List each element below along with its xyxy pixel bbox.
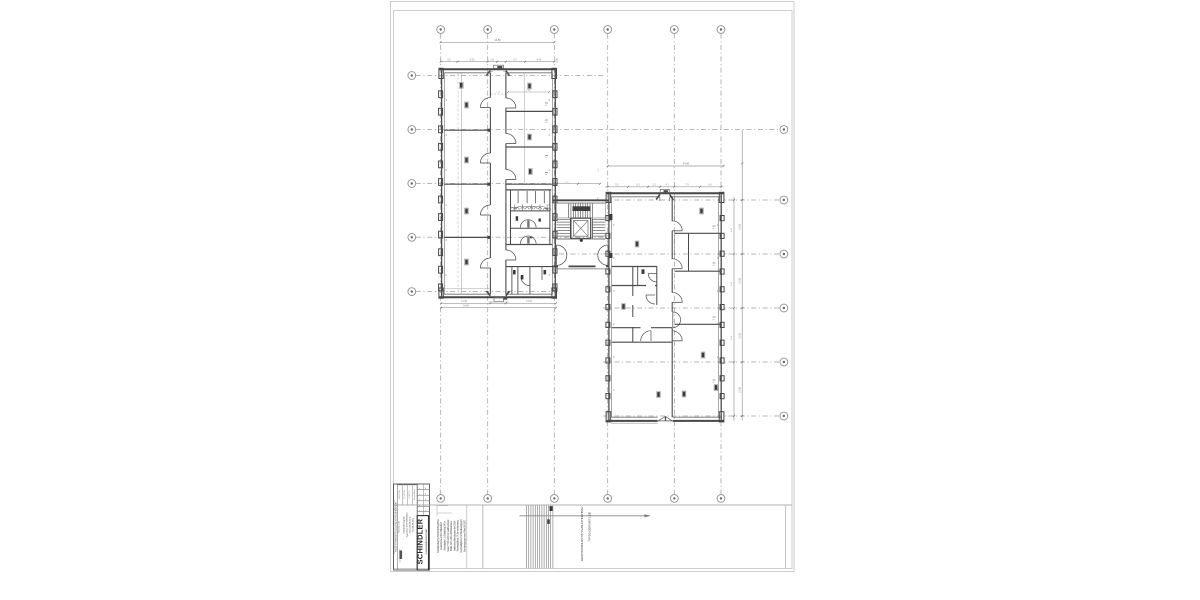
svg-text:8: 8 <box>425 494 426 496</box>
svg-text:34.80: 34.80 <box>463 305 470 308</box>
svg-text:Telefon 041 445 31 31: Telefon 041 445 31 31 <box>410 516 412 533</box>
svg-text:8: 8 <box>425 510 426 512</box>
svg-text:SCHINDLER: SCHINDLER <box>416 518 425 564</box>
svg-text:12.9.07 Ka: 12.9.07 Ka <box>404 489 406 499</box>
svg-text:WOHNUNGSBAUGESELLSCHAFT: WOHNUNGSBAUGESELLSCHAFT <box>425 528 428 555</box>
svg-text:14.50: 14.50 <box>461 300 468 303</box>
svg-text:Zugerstrasse 13 CH-6030 Ebikon: Zugerstrasse 13 CH-6030 Ebikon <box>406 511 409 537</box>
svg-text:8: 8 <box>425 499 426 501</box>
svg-text:13.55: 13.55 <box>738 277 741 284</box>
svg-text:Antrieb oben Maschinenraumlos: Antrieb oben Maschinenraumlos 6.5 kW <box>453 520 456 551</box>
svg-text:8: 8 <box>425 488 426 490</box>
svg-text:Projekt Nr 107.345 Block B Ges: Projekt Nr 107.345 Block B Geschossplan … <box>395 501 398 552</box>
svg-text:Steuerung Miconic TX Sammelste: Steuerung Miconic TX Sammelsteuerung <box>457 519 460 551</box>
svg-text:Schachtgrube 1.10 Schachtkopf: Schachtgrube 1.10 Schachtkopf 3.40 m <box>444 521 447 551</box>
svg-text:Fax 041 445 39 11: Fax 041 445 39 11 <box>413 517 415 532</box>
svg-text:Geschwindigkeit 1.0 m/s Seilau: Geschwindigkeit 1.0 m/s Seilaufhaengung … <box>460 518 463 553</box>
svg-text:13.55: 13.55 <box>738 332 741 339</box>
svg-text:Bemerkungen gemaess Offerte 26: Bemerkungen gemaess Offerte 26.6.2007 <box>463 519 466 552</box>
svg-text:9.45: 9.45 <box>537 58 542 61</box>
svg-text:Schindler Aufzuege AG: Schindler Aufzuege AG <box>403 516 406 534</box>
svg-text:Kabine 1100 x 1400 x 2200 Inne: Kabine 1100 x 1400 x 2200 Innenmasse <box>451 520 453 551</box>
svg-text:8.8.07 Wo: 8.8.07 Wo <box>399 490 401 499</box>
svg-text:TYP 26.6.2007 MST 1:100: TYP 26.6.2007 MST 1:100 <box>588 512 592 542</box>
svg-text:34.80: 34.80 <box>494 38 501 42</box>
svg-text:Datum Name: Datum Name <box>413 489 416 500</box>
svg-text:Tueren TT 800 x 2000 mm seitli: Tueren TT 800 x 2000 mm seitlich oeffnen… <box>447 519 450 552</box>
svg-text:13.90: 13.90 <box>526 300 533 303</box>
svg-text:Schindler Aufzug Typ S33 VKN 6: Schindler Aufzug Typ S33 VKN 630 kg 8 Pe… <box>437 518 440 553</box>
svg-text:GESCHOSSPLAN TYP PLAN A3 HOCHB: GESCHOSSPLAN TYP PLAN A3 HOCHBAU <box>580 507 584 561</box>
svg-text:Massstab 1:100: Massstab 1:100 <box>398 520 401 532</box>
svg-text:3.10.07 Vi: 3.10.07 Vi <box>409 490 411 499</box>
svg-text:2.35: 2.35 <box>557 58 559 63</box>
svg-text:Foerderhoehe 12.40 m Haltestel: Foerderhoehe 12.40 m Haltestellen 5 <box>440 521 443 549</box>
svg-text:13.55: 13.55 <box>738 223 741 230</box>
svg-text:34.80: 34.80 <box>683 162 690 166</box>
svg-text:13.55: 13.55 <box>738 386 741 393</box>
svg-text:9.90: 9.90 <box>470 58 475 61</box>
